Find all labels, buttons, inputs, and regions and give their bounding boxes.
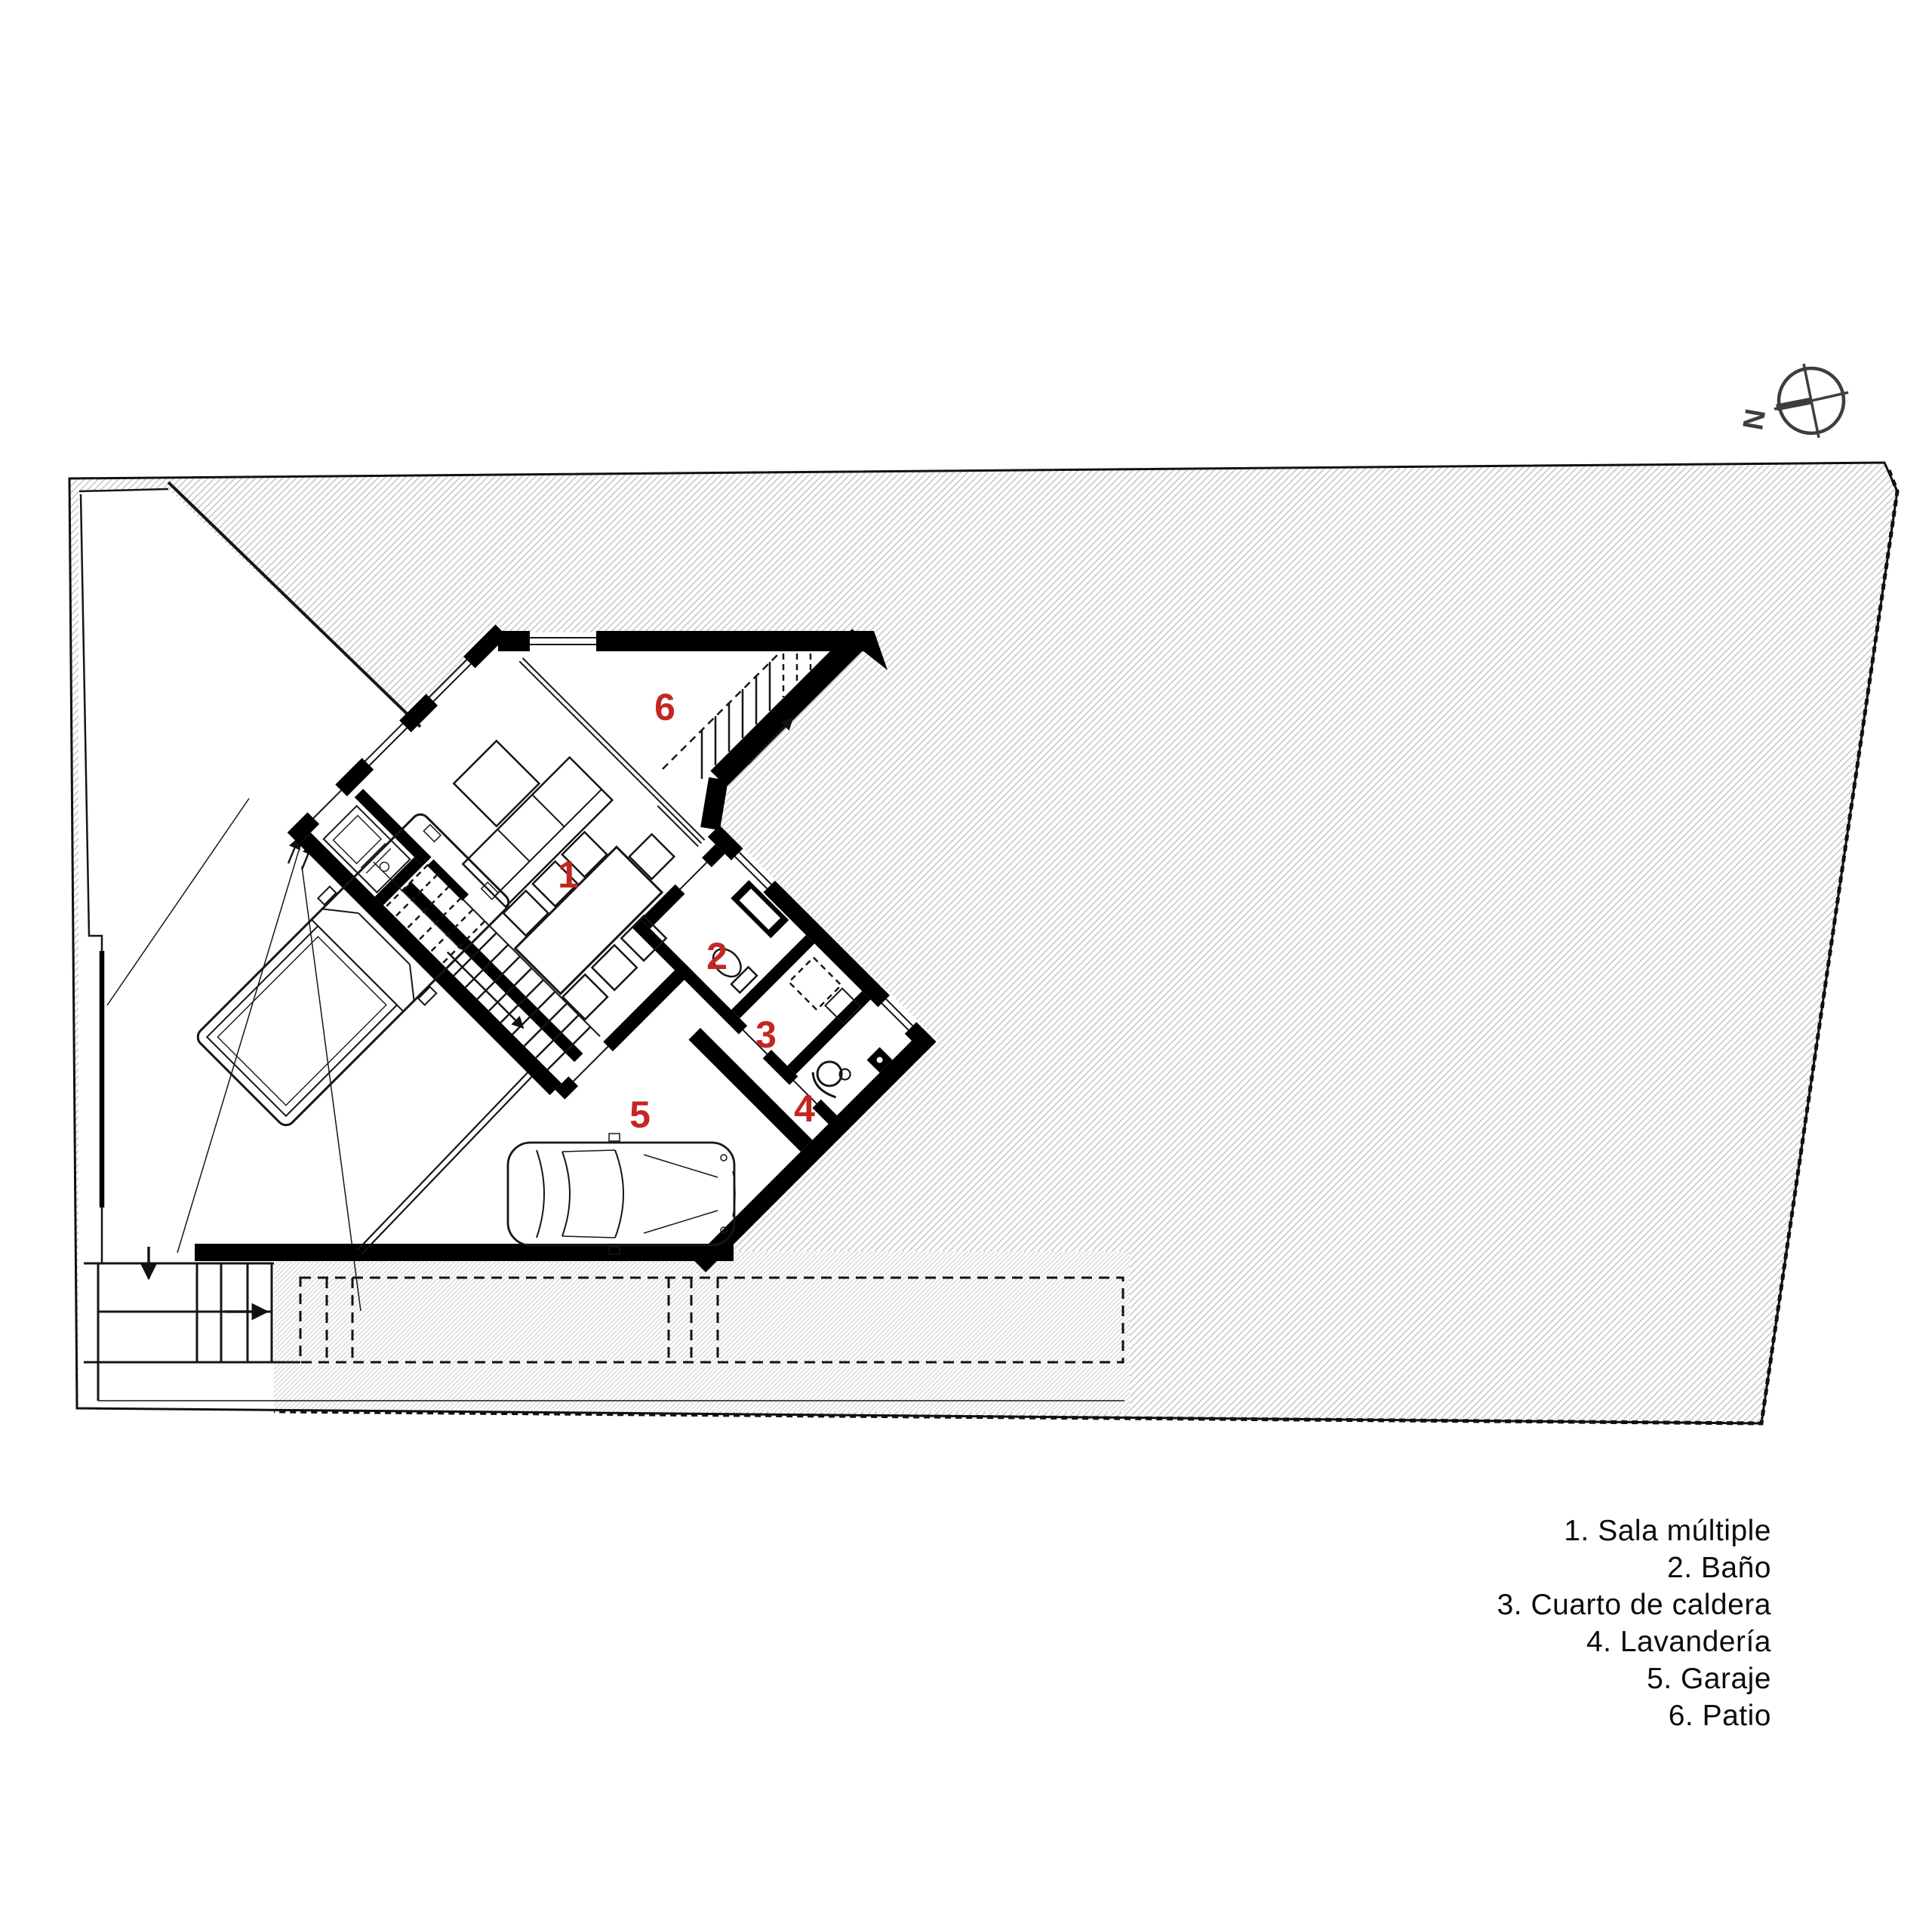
patio-jog-wall: [710, 779, 718, 829]
legend: 1. Sala múltiple 2. Baño 3. Cuarto de ca…: [1497, 1512, 1771, 1734]
legend-item-bano: 2. Baño: [1497, 1549, 1771, 1586]
legend-item-lavanderia: 4. Lavandería: [1497, 1623, 1771, 1660]
room-label-sala-multiple: 1: [558, 854, 579, 896]
patio-north-wall-b: [596, 631, 874, 651]
paved-court-hatch: [274, 1251, 1130, 1412]
compass-north-letter: N: [1737, 407, 1772, 432]
compass-north-arm: [1777, 401, 1811, 408]
room-label-garaje: 5: [629, 1094, 651, 1136]
room-label-bano: 2: [706, 935, 728, 977]
legend-item-cuarto-caldera: 3. Cuarto de caldera: [1497, 1586, 1771, 1623]
room-label-patio: 6: [654, 686, 675, 728]
legend-item-patio: 6. Patio: [1497, 1697, 1771, 1734]
legend-item-sala-multiple: 1. Sala múltiple: [1497, 1512, 1771, 1549]
room-label-cuarto-caldera: 3: [755, 1014, 777, 1056]
legend-item-garaje: 5. Garaje: [1497, 1660, 1771, 1697]
garage-south-wall: [195, 1244, 734, 1261]
compass: N: [1737, 364, 1848, 438]
room-label-lavanderia: 4: [794, 1088, 815, 1130]
site: [69, 463, 1897, 1423]
